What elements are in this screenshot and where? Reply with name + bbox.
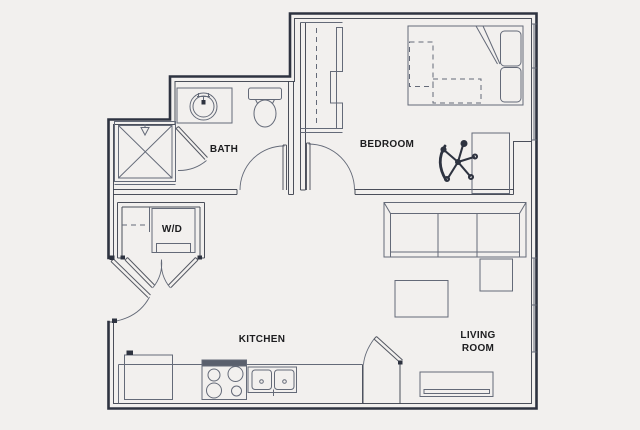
kitchen-sink <box>248 367 297 396</box>
coffee-table <box>395 281 448 318</box>
wd-label: W/D <box>162 224 182 235</box>
bath-label: BATH <box>210 144 238 155</box>
living-room: LIVING ROOM <box>384 203 526 397</box>
toilet <box>249 88 282 127</box>
sofa <box>384 203 526 258</box>
bedroom: BEDROOM <box>301 23 524 194</box>
tv-console <box>420 372 493 397</box>
hall-closet <box>363 337 403 404</box>
shower <box>115 122 176 185</box>
bedroom-door <box>307 143 355 190</box>
vanity-sink <box>177 88 232 123</box>
bath-door <box>240 145 287 190</box>
kitchen-counter <box>119 365 363 404</box>
living-room-label-line1: LIVING <box>460 330 495 341</box>
interior-walls <box>114 23 532 195</box>
stove <box>202 360 247 400</box>
refrigerator <box>125 351 173 400</box>
office-chair <box>440 140 477 181</box>
desk <box>472 133 510 194</box>
bath: BATH <box>115 88 287 190</box>
bed <box>408 26 523 105</box>
pillow <box>501 68 522 103</box>
floor-plan: BATH <box>0 0 640 430</box>
living-room-label-line2: ROOM <box>462 343 494 354</box>
bedroom-label: BEDROOM <box>360 139 414 150</box>
pillow <box>501 31 522 66</box>
bedroom-closet <box>301 23 343 133</box>
column <box>514 142 532 195</box>
shower-door <box>176 127 208 171</box>
side-table <box>480 259 513 291</box>
kitchen: KITCHEN <box>119 334 363 404</box>
kitchen-label: KITCHEN <box>239 334 286 345</box>
